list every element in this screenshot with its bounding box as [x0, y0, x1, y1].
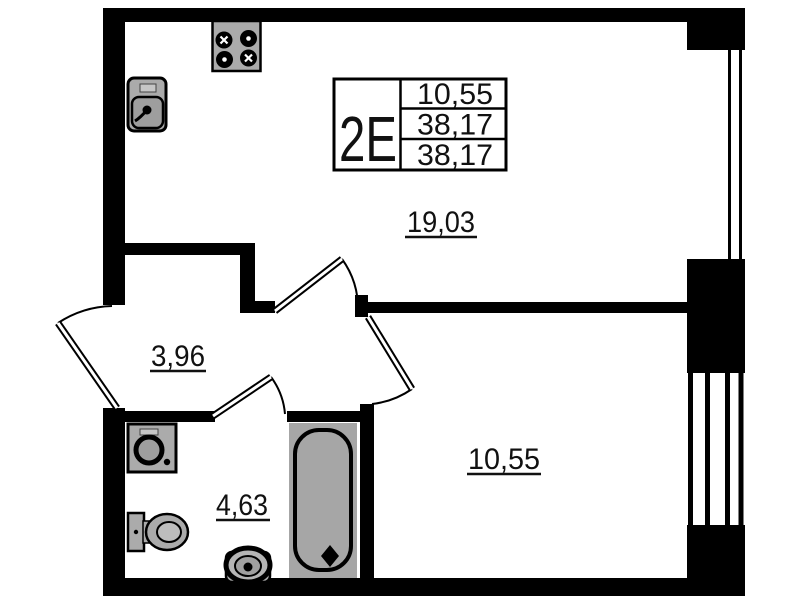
bathroom-area-label: 4,63 — [216, 489, 268, 522]
unit-total-area-reduced-value: 38,17 — [417, 139, 493, 172]
washing-machine — [128, 424, 176, 472]
bathtub — [289, 423, 357, 578]
living-room-door — [275, 259, 358, 311]
unit-type-label: 2Е — [339, 103, 397, 175]
toilet — [128, 513, 188, 551]
floor-plan: 19,03 3,96 4,63 10,55 2Е 10,55 38,17 38,… — [0, 0, 799, 600]
bedroom-door — [368, 317, 412, 404]
floor-plan-drawing: 19,03 3,96 4,63 10,55 2Е 10,55 38,17 38,… — [0, 0, 799, 600]
bedroom-area-label: 10,55 — [468, 443, 540, 476]
unit-living-area-value: 10,55 — [417, 78, 493, 111]
wall-bottom — [103, 578, 745, 596]
unit-info-card: 2Е 10,55 38,17 38,17 — [334, 78, 506, 175]
kitchen-living-area-label: 19,03 — [407, 206, 475, 239]
wall-top — [103, 8, 745, 22]
wall-left-upper — [103, 8, 125, 305]
washbasin — [226, 548, 270, 582]
stove — [213, 21, 261, 71]
wall-hall-living — [240, 301, 275, 313]
entrance-door — [58, 306, 117, 408]
wall-pier-mid-right — [687, 259, 745, 373]
wall-pier-bottom-right — [687, 525, 745, 596]
wall-living-bedroom — [368, 302, 687, 313]
kitchen-sink — [128, 78, 166, 131]
wall-bath-bedroom — [360, 404, 374, 578]
bedroom-window — [691, 373, 742, 525]
bathroom-door — [213, 377, 285, 416]
wall-pier-top-right — [687, 8, 745, 50]
wall-bath-top-left — [125, 411, 215, 422]
unit-total-area-value: 38,17 — [417, 109, 493, 142]
hallway-area-label: 3,96 — [151, 340, 205, 373]
living-room-window — [730, 50, 741, 259]
wall-left-lower — [103, 408, 125, 596]
wall-kitchen-hall — [125, 243, 255, 255]
wall-bath-top-right — [287, 411, 360, 422]
